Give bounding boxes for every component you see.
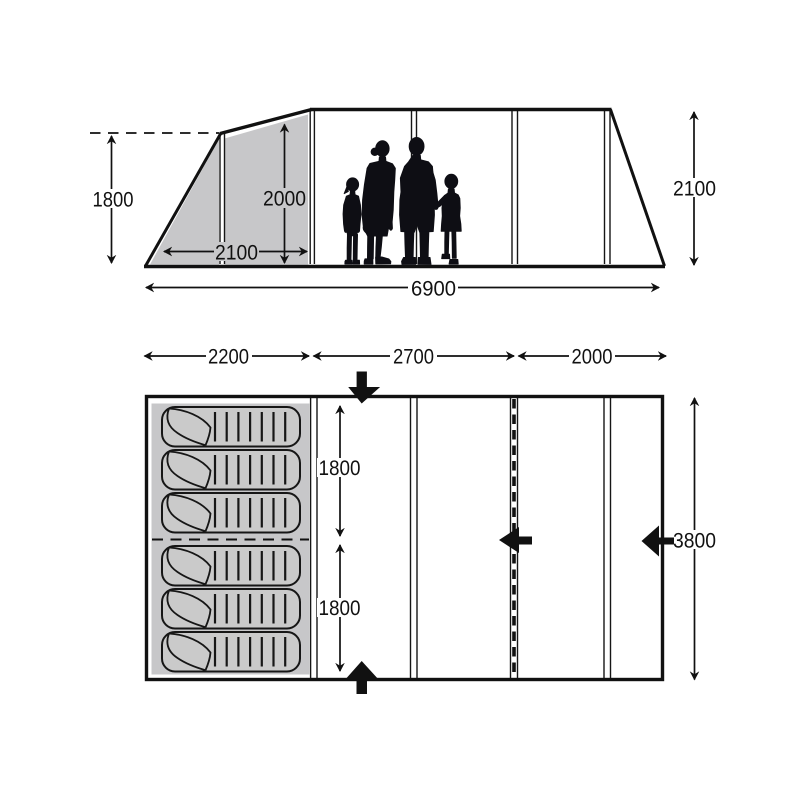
svg-text:2100: 2100: [673, 178, 716, 201]
svg-text:2000: 2000: [572, 346, 613, 369]
svg-text:2700: 2700: [393, 346, 434, 369]
svg-text:1800: 1800: [319, 597, 361, 620]
svg-text:1800: 1800: [319, 457, 361, 480]
svg-text:3800: 3800: [673, 530, 716, 553]
svg-text:2200: 2200: [208, 346, 249, 369]
svg-text:2000: 2000: [263, 188, 306, 211]
svg-text:6900: 6900: [411, 278, 456, 301]
svg-text:2100: 2100: [215, 242, 258, 265]
svg-text:1800: 1800: [93, 189, 134, 212]
